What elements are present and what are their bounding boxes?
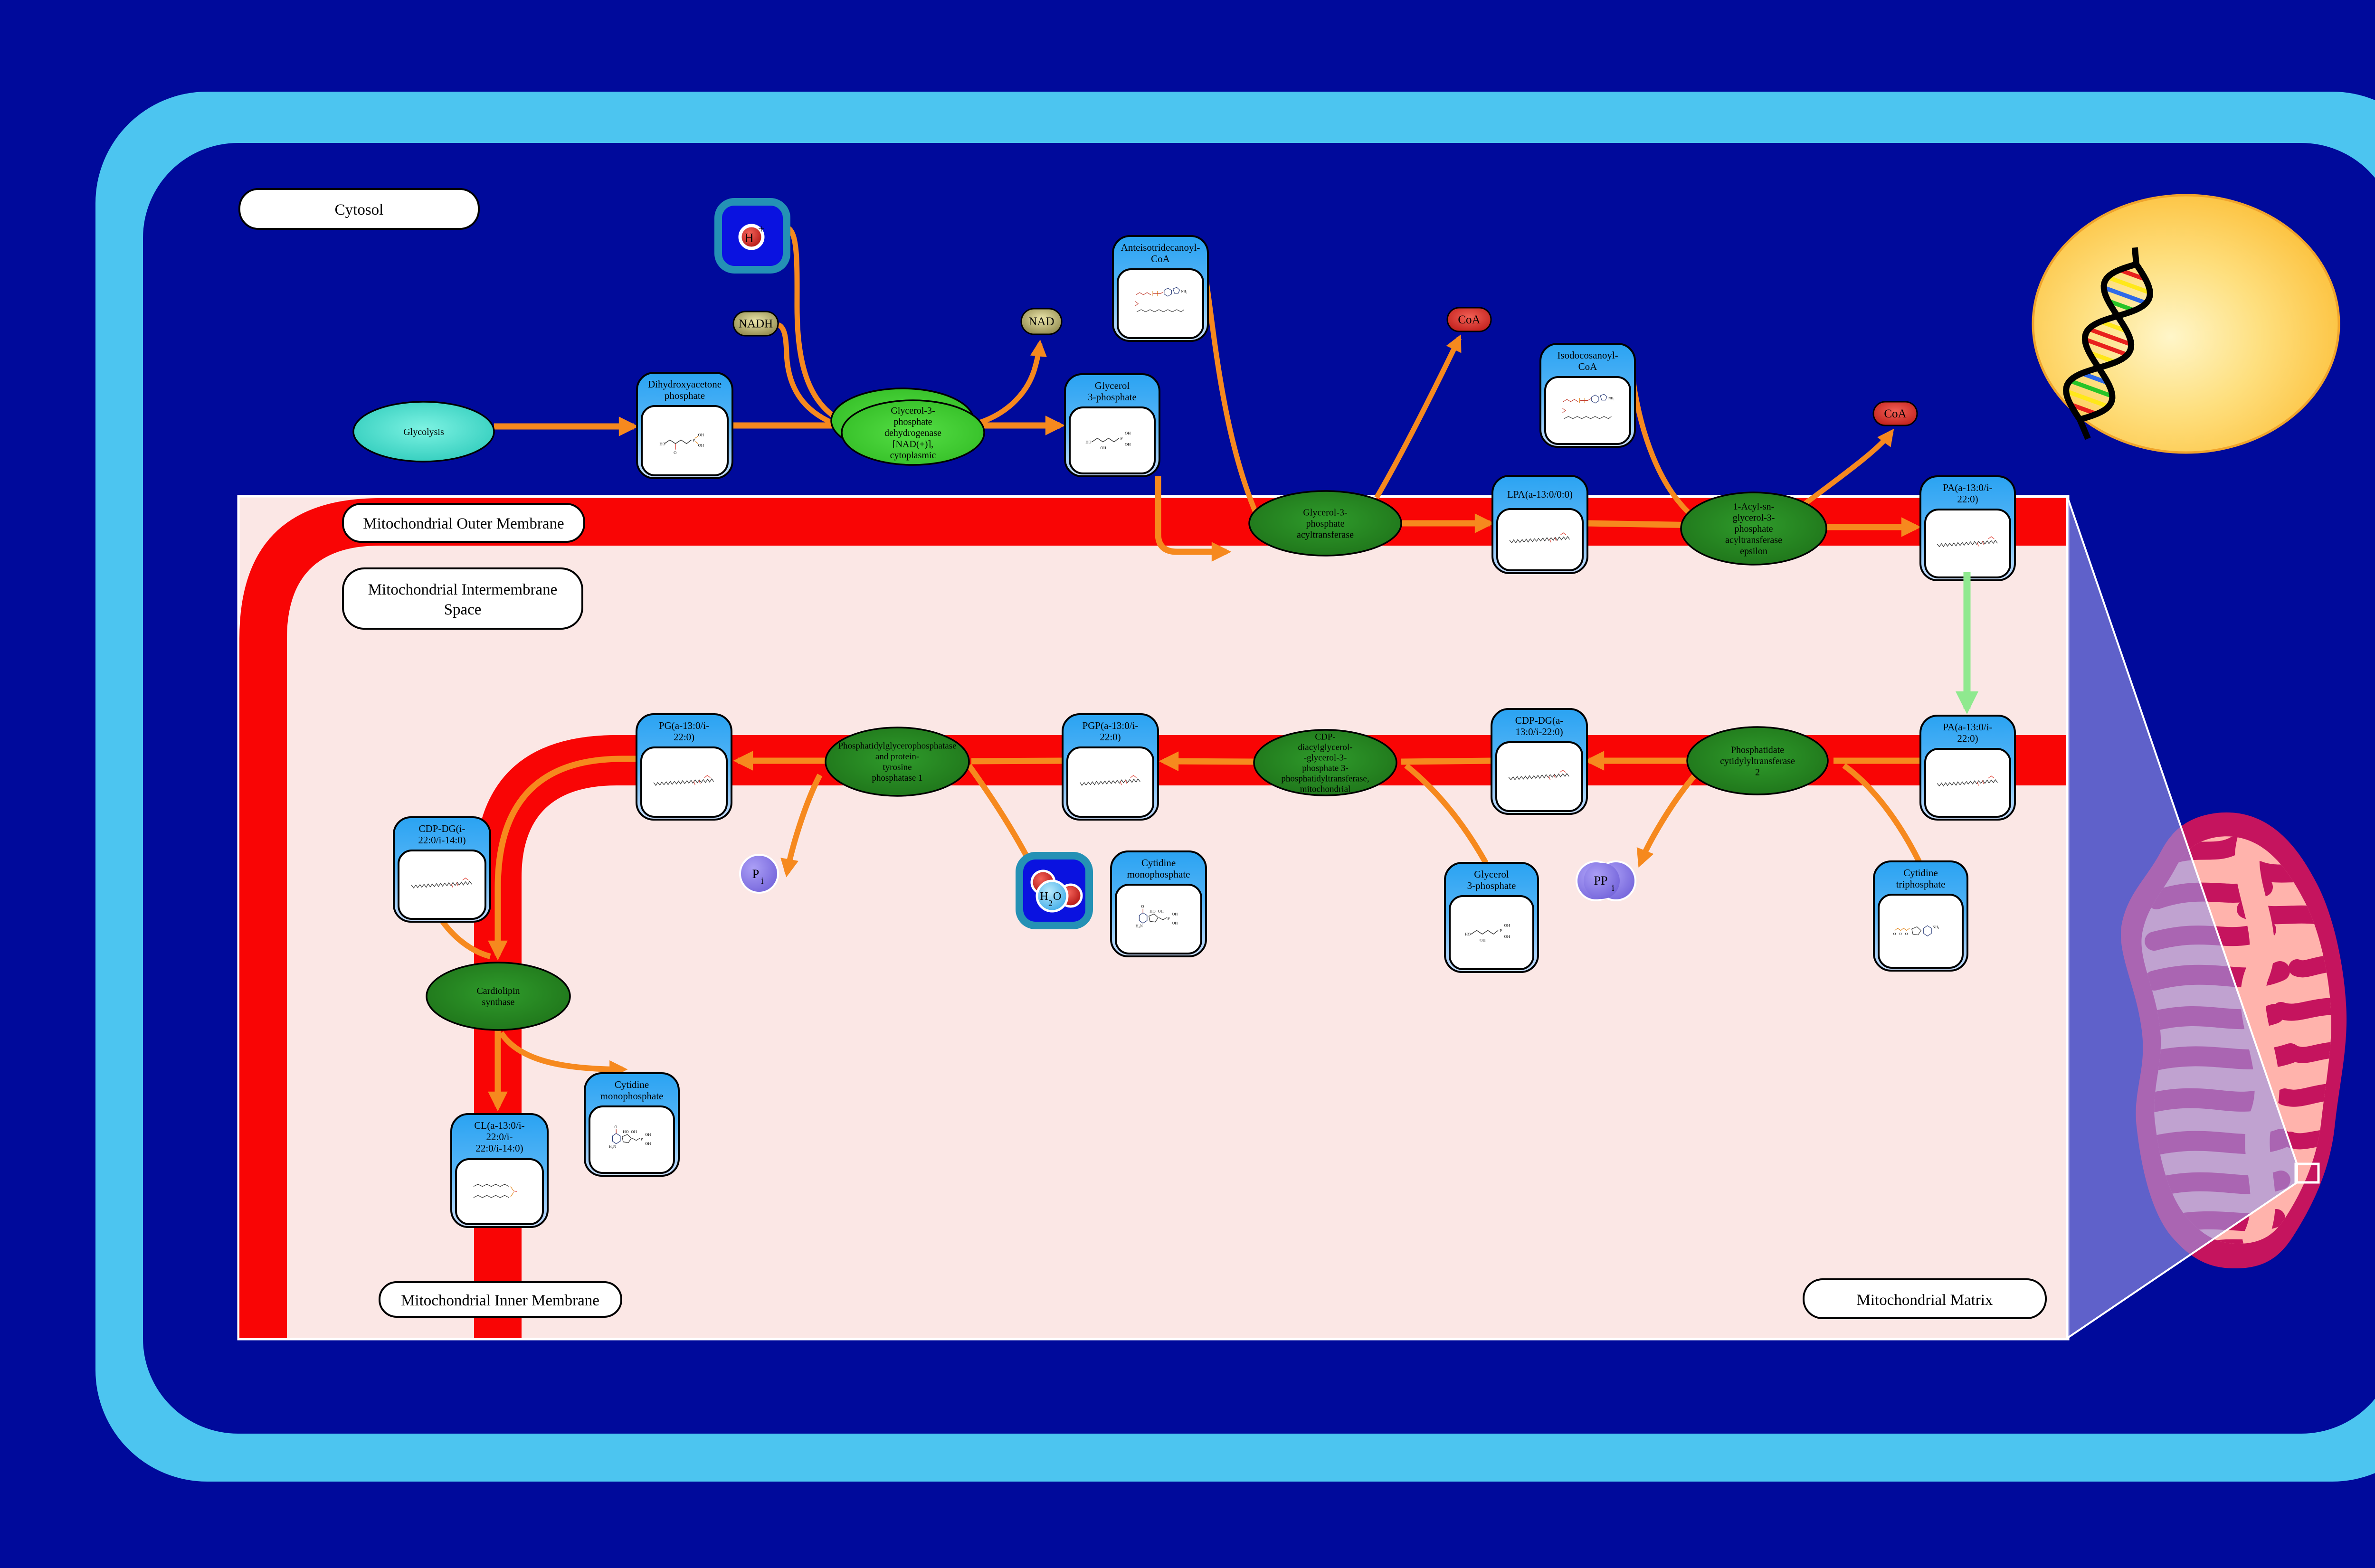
svg-text:OH: OH <box>1504 934 1510 939</box>
svg-text:triphosphate: triphosphate <box>1896 878 1946 890</box>
svg-text:O: O <box>1141 904 1144 908</box>
svg-text:H: H <box>744 231 754 245</box>
svg-text:CDP-DG(a-: CDP-DG(a- <box>1515 715 1563 726</box>
svg-text:LPA(a-13:0/0:0): LPA(a-13:0/0:0) <box>1507 489 1573 500</box>
svg-text:Cytidine: Cytidine <box>1141 857 1176 869</box>
svg-text:Mitochondrial Inner Membrane: Mitochondrial Inner Membrane <box>401 1292 599 1309</box>
svg-text:OH: OH <box>631 1129 636 1134</box>
svg-text:OH: OH <box>1158 908 1163 913</box>
svg-text:-glycerol-3-: -glycerol-3- <box>1304 753 1347 763</box>
svg-text:Glycerol-3-: Glycerol-3- <box>1303 507 1347 518</box>
svg-text:P: P <box>1121 436 1123 441</box>
svg-text:phosphate: phosphate <box>665 390 705 401</box>
svg-text:dehydrogenase: dehydrogenase <box>884 428 941 438</box>
svg-text:H₂N: H₂N <box>609 1144 616 1149</box>
svg-text:Glycerol-3-: Glycerol-3- <box>891 406 935 416</box>
svg-text:phosphate: phosphate <box>1306 519 1344 529</box>
svg-text:NH₂: NH₂ <box>1932 925 1939 929</box>
svg-text:NAD: NAD <box>1028 315 1054 328</box>
svg-text:monophosphate: monophosphate <box>600 1090 664 1102</box>
svg-text:NH₂: NH₂ <box>1608 397 1615 400</box>
svg-text:HO: HO <box>1465 932 1471 936</box>
svg-text:CL(a-13:0/i-: CL(a-13:0/i- <box>474 1120 524 1131</box>
svg-text:monophosphate: monophosphate <box>1127 869 1190 880</box>
svg-text:3-phosphate: 3-phosphate <box>1088 391 1137 403</box>
svg-text:HO: HO <box>1149 908 1155 913</box>
svg-text:PG(a-13:0/i-: PG(a-13:0/i- <box>659 720 709 731</box>
svg-text:CoA: CoA <box>1578 361 1598 372</box>
svg-text:O: O <box>1899 932 1902 936</box>
svg-text:O: O <box>674 450 676 455</box>
svg-text:Space: Space <box>444 601 482 618</box>
svg-text:mitochondrial: mitochondrial <box>1300 784 1351 794</box>
svg-text:22:0/i-: 22:0/i- <box>486 1131 513 1143</box>
svg-text:OH: OH <box>645 1132 651 1137</box>
svg-text:Phosphatidylglycerophosphatase: Phosphatidylglycerophosphatase <box>838 741 956 751</box>
svg-text:HO: HO <box>1085 440 1091 444</box>
svg-text:OH: OH <box>1172 920 1178 925</box>
svg-text:PA(a-13:0/i-: PA(a-13:0/i- <box>1943 721 1992 733</box>
svg-text:phosphatase 1: phosphatase 1 <box>872 773 922 783</box>
svg-text:OH: OH <box>1480 938 1485 943</box>
svg-text:CDP-: CDP- <box>1315 732 1335 742</box>
svg-text:22:0): 22:0) <box>1957 733 1978 744</box>
svg-text:OH: OH <box>645 1141 651 1146</box>
svg-text:1-Acyl-sn-: 1-Acyl-sn- <box>1733 501 1775 512</box>
svg-text:Dihydroxyacetone: Dihydroxyacetone <box>648 378 722 390</box>
svg-text:HO: HO <box>623 1129 628 1134</box>
svg-text:H₂N: H₂N <box>1136 924 1143 928</box>
svg-text:NH₂: NH₂ <box>1181 290 1187 293</box>
svg-text:phosphate 3-: phosphate 3- <box>1302 764 1349 774</box>
svg-text:P: P <box>1168 916 1170 921</box>
svg-text:OH: OH <box>1504 923 1510 928</box>
svg-text:+: + <box>758 223 765 236</box>
svg-text:i: i <box>761 876 764 886</box>
svg-text:13:0/i-22:0): 13:0/i-22:0) <box>1515 726 1563 737</box>
svg-text:Mitochondrial Outer Membrane: Mitochondrial Outer Membrane <box>363 515 564 532</box>
svg-text:epsilon: epsilon <box>1740 546 1767 557</box>
svg-text:3-phosphate: 3-phosphate <box>1467 880 1516 891</box>
svg-text:Mitochondrial Intermembrane: Mitochondrial Intermembrane <box>368 581 558 598</box>
svg-text:Cytosol: Cytosol <box>335 201 384 218</box>
svg-text:phosphate: phosphate <box>893 416 932 427</box>
svg-text:cytidylyltransferase: cytidylyltransferase <box>1720 756 1795 766</box>
svg-text:Cardiolipin: Cardiolipin <box>476 986 520 996</box>
svg-text:phosphate: phosphate <box>1734 524 1773 534</box>
svg-text:synthase: synthase <box>482 997 515 1008</box>
svg-text:22:0/i-14:0): 22:0/i-14:0) <box>418 834 465 846</box>
svg-text:O: O <box>614 1124 617 1129</box>
svg-text:Glycolysis: Glycolysis <box>403 427 444 437</box>
svg-text:PGP(a-13:0/i-: PGP(a-13:0/i- <box>1083 720 1139 731</box>
svg-text:cytoplasmic: cytoplasmic <box>890 450 936 461</box>
svg-text:OH: OH <box>698 443 704 447</box>
svg-text:O: O <box>1053 890 1061 903</box>
svg-text:CDP-DG(i-: CDP-DG(i- <box>419 823 465 834</box>
svg-text:[NAD(+)],: [NAD(+)], <box>893 439 933 449</box>
svg-text:P: P <box>752 867 759 881</box>
svg-text:Mitochondrial Matrix: Mitochondrial Matrix <box>1857 1292 1993 1309</box>
svg-text:Cytidine: Cytidine <box>1903 867 1938 878</box>
svg-text:Isodocosanoyl-: Isodocosanoyl- <box>1557 349 1618 361</box>
svg-text:PA(a-13:0/i-: PA(a-13:0/i- <box>1943 482 1992 493</box>
svg-text:O: O <box>1905 932 1908 936</box>
svg-text:CoA: CoA <box>1151 253 1170 264</box>
svg-text:22:0): 22:0) <box>1100 731 1121 743</box>
svg-text:Anteisotridecanoyl-: Anteisotridecanoyl- <box>1121 242 1200 253</box>
svg-text:OH: OH <box>1125 442 1130 446</box>
svg-text:22:0): 22:0) <box>674 731 694 743</box>
svg-text:2: 2 <box>1048 898 1053 908</box>
svg-text:Glycerol: Glycerol <box>1095 380 1130 391</box>
svg-text:OH: OH <box>1101 445 1106 450</box>
svg-text:Cytidine: Cytidine <box>615 1079 649 1090</box>
svg-text:PP: PP <box>1594 874 1608 888</box>
svg-text:OH: OH <box>698 433 704 437</box>
svg-text:22:0/i-14:0): 22:0/i-14:0) <box>475 1143 523 1154</box>
svg-text:HO: HO <box>659 441 665 446</box>
svg-text:OH: OH <box>1172 912 1178 916</box>
svg-text:phosphatidyltransferase,: phosphatidyltransferase, <box>1281 774 1369 784</box>
svg-text:Phosphatidate: Phosphatidate <box>1731 745 1784 755</box>
svg-text:tyrosine: tyrosine <box>883 763 912 773</box>
svg-text:22:0): 22:0) <box>1957 493 1978 505</box>
svg-text:2: 2 <box>1755 767 1760 777</box>
svg-text:CoA: CoA <box>1884 407 1906 420</box>
svg-text:NADH: NADH <box>739 318 773 331</box>
svg-text:Glycerol: Glycerol <box>1474 869 1509 880</box>
svg-text:O: O <box>1893 932 1896 936</box>
svg-text:P: P <box>641 1137 643 1142</box>
svg-text:glycerol-3-: glycerol-3- <box>1733 512 1775 523</box>
svg-text:acyltransferase: acyltransferase <box>1297 529 1354 540</box>
svg-text:CoA: CoA <box>1458 313 1480 326</box>
svg-text:acyltransferase: acyltransferase <box>1725 535 1782 545</box>
svg-text:OH: OH <box>1125 431 1130 435</box>
svg-text:and protein-: and protein- <box>875 752 919 762</box>
svg-text:P: P <box>1500 928 1502 933</box>
svg-text:H: H <box>1040 890 1048 903</box>
svg-text:i: i <box>1612 883 1615 893</box>
svg-text:diacylglycerol-: diacylglycerol- <box>1298 743 1352 753</box>
